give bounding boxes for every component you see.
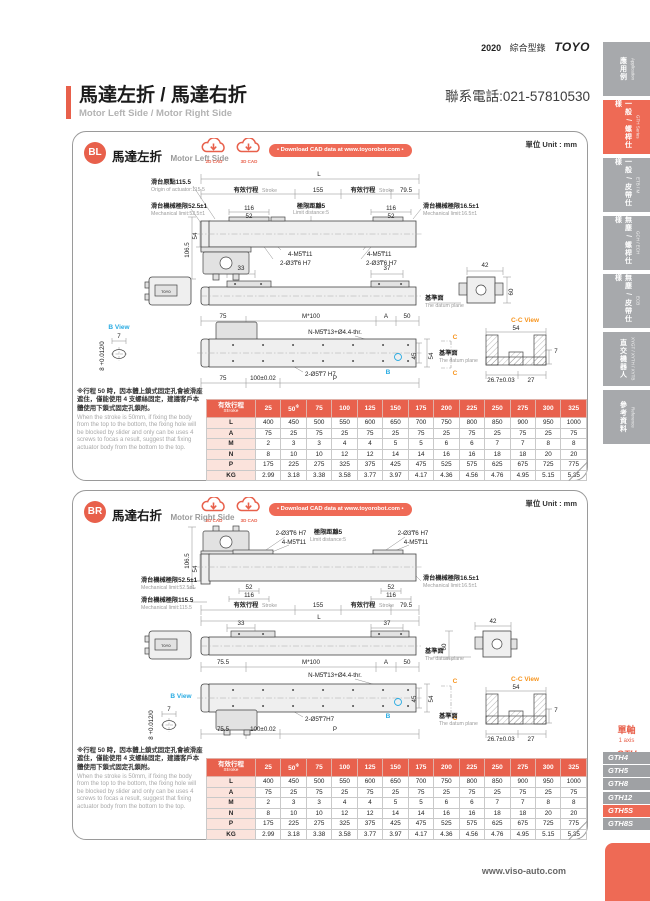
stroke-column-header: 325 [561, 759, 587, 777]
table-cell: 650 [383, 418, 408, 429]
page-subtitle: Motor Left Side / Motor Right Side [79, 108, 247, 119]
table-cell: 16 [434, 808, 459, 819]
table-cell: 5 [408, 439, 433, 450]
table-cell: 425 [383, 819, 408, 830]
table-cell: 600 [357, 777, 382, 788]
table-cell: 325 [332, 460, 357, 471]
drawing-label: 4-M5₸11 [367, 251, 392, 258]
table-row: P175225275325375425475525575625675725775 [207, 819, 587, 830]
table-cell: 725 [535, 460, 560, 471]
table-cell: 4.95 [510, 470, 535, 481]
table-cell: 575 [459, 460, 484, 471]
table-cell: 2 [256, 439, 281, 450]
section-badge-br: BR [84, 501, 106, 523]
table-cell: 4 [332, 798, 357, 809]
footnote-br: ※行程 50 時，因本體上鎖式固定孔會被滑座遮住，僅能使用 4 支螺絲固定，建議… [77, 747, 204, 811]
drawing-label: 79.5 [400, 187, 413, 194]
table-cell: 750 [434, 418, 459, 429]
tab-label-en: ETB / M [636, 177, 641, 193]
drawing-label: 42 [482, 262, 489, 269]
sidebar-tab-application[interactable]: 應用例Application [603, 42, 650, 96]
stroke-column-header: 175 [408, 400, 433, 418]
table-row: L400450500550600650700750800850900950100… [207, 777, 587, 788]
panel-motor-right: BR 馬達右折 Motor Right Side 2D CAD 3D CAD •… [72, 490, 588, 840]
drawing-label: P [333, 726, 337, 733]
tab-label-en: Application [631, 58, 636, 80]
table-cell: 3 [281, 439, 306, 450]
row-label: N [207, 808, 256, 819]
table-cell: 3.77 [357, 829, 382, 840]
table-cell: 275 [306, 819, 331, 830]
download-cad-button[interactable]: • Download CAD data at www.toyorobot.com… [269, 144, 412, 157]
stroke-column-header: 325 [561, 400, 587, 418]
tab-label-en: XYGT / XYTH / XYTB [631, 337, 636, 380]
table-cell: 25 [383, 428, 408, 439]
drawing-label: TOYO [161, 290, 171, 294]
table-cell: 8 [535, 439, 560, 450]
table-cell: 14 [383, 808, 408, 819]
drawing-label: M*100 [302, 659, 320, 666]
drawing-label: 基準面 [438, 712, 458, 720]
drawing-label: 50 [404, 313, 411, 320]
stroke-column-header: 200 [434, 400, 459, 418]
table-cell: 3 [306, 798, 331, 809]
stroke-column-header: 250 [485, 759, 510, 777]
stroke-column-header: 100 [332, 759, 357, 777]
drawing-label: C [453, 370, 458, 377]
stroke-column-header: 50※ [281, 400, 306, 418]
drawing-label: Limit distance:5 [310, 537, 346, 543]
table-cell: 25 [434, 428, 459, 439]
table-cell: 25 [281, 428, 306, 439]
unit-label: 單位 Unit : mm [525, 139, 577, 150]
table-row: A75257525752575257525752575 [207, 787, 587, 798]
table-cell: 14 [383, 449, 408, 460]
drawing-label: 2-Ø3₸6 H7 [398, 530, 429, 537]
drawing-label: Mechanical limit:52.5±1 [141, 585, 195, 591]
table-cell: 6 [434, 439, 459, 450]
drawing-label: 2-Ø3₸6 H7 [280, 260, 311, 267]
table-cell: 75 [408, 428, 433, 439]
row-label: A [207, 428, 256, 439]
table-cell: 75 [561, 787, 587, 798]
drawing-label: Mechanical limit:16.5±1 [423, 211, 477, 217]
stroke-column-header: 50※ [281, 759, 306, 777]
table-cell: 225 [281, 460, 306, 471]
stroke-column-header: 25 [256, 400, 281, 418]
table-cell: 475 [408, 460, 433, 471]
drawing-label: 有效行程 [351, 601, 377, 609]
table-cell: 14 [408, 449, 433, 460]
table-cell: 18 [510, 449, 535, 460]
drawing-label: 54 [192, 232, 199, 239]
table-cell: 16 [459, 808, 484, 819]
table-cell: 675 [510, 819, 535, 830]
stroke-column-header: 25 [256, 759, 281, 777]
table-cell: 18 [510, 808, 535, 819]
drawing-label: 79.5 [400, 602, 413, 609]
table-cell: 75 [510, 428, 535, 439]
cad-2d-label: 2D CAD [197, 518, 231, 523]
table-cell: 75 [357, 787, 382, 798]
table-cell: 175 [256, 819, 281, 830]
table-cell: 3 [281, 798, 306, 809]
sidebar-tab-ecb[interactable]: 無塵 / 皮帶仕樣ECB [603, 274, 650, 328]
drawing-label: 滑台機械極限115.5 [141, 596, 194, 604]
drawing-label: C [453, 678, 458, 685]
sidebar-tab-reference[interactable]: 參考資料Reference [603, 390, 650, 444]
table-cell: 18 [485, 808, 510, 819]
drawing-label: Mechanical limit:115.5 [141, 605, 192, 611]
row-label: A [207, 787, 256, 798]
drawing-label: 基準面 [424, 647, 444, 655]
drawing-label: P [333, 375, 337, 382]
drawing-label: 滑台原點115.5 [151, 178, 191, 186]
sidebar-tab-gch-ech[interactable]: 無塵 / 螺桿仕樣GCH / ECH [603, 216, 650, 270]
drawing-label: 106.5 [184, 242, 191, 258]
page-title-block: 馬達左折 / 馬達右折 Motor Left Side / Motor Righ… [66, 86, 247, 119]
table-cell: 3.58 [332, 470, 357, 481]
table-cell: 2 [256, 798, 281, 809]
drawing-label: 54 [513, 684, 520, 691]
page-title: 馬達左折 / 馬達右折 [79, 86, 247, 106]
table-cell: 10 [306, 449, 331, 460]
brand-logo: TOYO [554, 40, 590, 54]
table-cell: 4.56 [459, 829, 484, 840]
cad-3d-download[interactable]: 3D CAD [232, 497, 266, 523]
table-cell: 400 [256, 418, 281, 429]
table-cell: 900 [510, 777, 535, 788]
table-cell: 4.36 [434, 829, 459, 840]
catalog-header: 2020 綜合型錄 TOYO [481, 40, 590, 54]
table-cell: 625 [485, 819, 510, 830]
table-cell: 1000 [561, 777, 587, 788]
tab-label-en: Reference [631, 407, 636, 428]
table-row: KG2.993.183.383.583.773.974.174.364.564.… [207, 470, 587, 481]
table-cell: 375 [357, 819, 382, 830]
drawing-label: 52 [388, 213, 395, 220]
table-cell: 850 [485, 777, 510, 788]
tab-label-en: GCH / ECH [636, 231, 641, 254]
table-cell: 750 [434, 777, 459, 788]
drawing-label: 有效行程 [234, 601, 260, 609]
table-cell: 650 [383, 777, 408, 788]
table-cell: 20 [561, 808, 587, 819]
table-cell: 2.99 [256, 829, 281, 840]
drawing-label: Origin of actuator:115.5 [151, 187, 205, 193]
table-cell: 10 [281, 808, 306, 819]
table-cell: 3.58 [332, 829, 357, 840]
panel-motor-left: BL 馬達左折 Motor Left Side 2D CAD 3D CAD • … [72, 131, 588, 481]
drawing-label: 75 [220, 313, 227, 320]
table-cell: 500 [306, 418, 331, 429]
contact-phone: 聯系電話:021-57810530 [445, 85, 590, 105]
table-row: L400450500550600650700750800850900950100… [207, 418, 587, 429]
drawing-label: 2-Ø5₸7 H7 [305, 371, 336, 378]
table-cell: 800 [459, 418, 484, 429]
table-row: KG2.993.183.383.583.773.974.174.364.564.… [207, 829, 587, 840]
table-cell: 8 [561, 439, 587, 450]
footnote-en: When the stroke is 50mm, if fixing the b… [77, 415, 204, 453]
footnote-bl: ※行程 50 時，因本體上鎖式固定孔會被滑座遮住，僅能使用 4 支螺絲固定，建議… [77, 388, 204, 452]
drawing-label: 基準面 [424, 294, 444, 302]
drawing-label: 7 [554, 348, 558, 355]
drawing-label: 7 [117, 333, 121, 340]
drawing-label: 37 [384, 620, 391, 627]
table-cell: 25 [332, 428, 357, 439]
table-cell: 4.17 [408, 470, 433, 481]
row-label: P [207, 819, 256, 830]
footnote-en: When the stroke is 50mm, if fixing the b… [77, 774, 204, 812]
footnote-zh: ※行程 50 時，因本體上鎖式固定孔會被滑座遮住，僅能使用 4 支螺絲固定，建議… [77, 747, 204, 772]
drawing-label: 75.5 [217, 659, 230, 666]
footnote-zh: ※行程 50 時，因本體上鎖式固定孔會被滑座遮住，僅能使用 4 支螺絲固定，建議… [77, 388, 204, 413]
tab-label-zh: 參考資料 [618, 401, 628, 433]
drawing-label: 有效行程 [351, 186, 377, 194]
table-cell: 525 [434, 819, 459, 830]
drawing-label: 8 +0.012/0 [99, 341, 106, 371]
table-cell: 10 [306, 808, 331, 819]
table-cell: 900 [510, 418, 535, 429]
stroke-column-header: 150 [383, 759, 408, 777]
drawing-label: 7 [554, 707, 558, 714]
drawing-label: 116 [244, 205, 254, 212]
table-cell: 16 [434, 449, 459, 460]
table-cell: 1000 [561, 418, 587, 429]
drawing-label: 滑台機械極限16.5±1 [423, 202, 480, 210]
technical-drawing-br: 2-Ø3₸6 H74-M5₸11極限距離5Limit distance:52-Ø… [73, 525, 589, 753]
drawing-label: 106.5 [184, 553, 191, 569]
table-cell: 3.18 [281, 829, 306, 840]
stroke-column-header: 75 [306, 759, 331, 777]
table-cell: 275 [306, 460, 331, 471]
table-cell: 12 [357, 449, 382, 460]
drawing-label: 極限距離5 [296, 202, 326, 210]
row-label: KG [207, 470, 256, 481]
table-cell: 7 [510, 439, 535, 450]
drawing-label: 52 [246, 584, 253, 591]
cad-3d-label: 3D CAD [232, 159, 266, 164]
stroke-header-cell: 有效行程Stroke [207, 400, 256, 418]
stroke-column-header: 125 [357, 759, 382, 777]
cad-2d-download[interactable]: 2D CAD [197, 497, 231, 523]
cloud-download-icon [199, 138, 229, 155]
drawing-label: M*100 [302, 313, 320, 320]
table-cell: 3 [306, 439, 331, 450]
table-cell: 75 [306, 428, 331, 439]
tab-label-en: ECB [636, 296, 641, 305]
stroke-column-header: 100 [332, 400, 357, 418]
table-cell: 225 [281, 819, 306, 830]
cloud-download-icon [199, 497, 229, 514]
row-label: L [207, 418, 256, 429]
series-zh: 單軸 [617, 725, 635, 735]
catalog-name: 綜合型錄 [510, 43, 546, 53]
table-cell: 25 [485, 787, 510, 798]
table-cell: 4.76 [485, 470, 510, 481]
title-accent-bar [66, 86, 71, 119]
table-cell: 425 [383, 460, 408, 471]
drawing-label: C-C View [511, 676, 540, 683]
drawing-label: 60 [508, 288, 515, 295]
drawing-label: 極限距離5 [313, 528, 343, 536]
table-cell: 75 [408, 787, 433, 798]
table-cell: 75 [561, 428, 587, 439]
table-cell: 75 [510, 787, 535, 798]
table-cell: 675 [510, 460, 535, 471]
table-cell: 75 [306, 787, 331, 798]
drawing-label: 45 [411, 352, 418, 359]
stroke-table-br: 有效行程Stroke2550※7510012515017520022525027… [206, 758, 587, 840]
table-cell: 25 [281, 787, 306, 798]
drawing-label: The datum plane [425, 656, 464, 662]
table-cell: 3.97 [383, 470, 408, 481]
table-cell: 4.17 [408, 829, 433, 840]
table-cell: 8 [256, 449, 281, 460]
drawing-label: 54 [428, 695, 435, 702]
drawing-label: C-C View [511, 317, 540, 324]
model-button-gth5s[interactable]: GTH5S [603, 805, 650, 817]
table-cell: 7 [485, 798, 510, 809]
drawing-label: 7 [167, 706, 171, 713]
page-corner-decoration [605, 843, 650, 901]
table-cell: 850 [485, 418, 510, 429]
drawing-label: 4-M5₸11 [404, 539, 429, 546]
table-cell: 3.77 [357, 470, 382, 481]
drawing-label: The datum plane [425, 303, 464, 309]
stroke-column-header: 150 [383, 400, 408, 418]
drawing-label: B View [170, 693, 192, 700]
table-cell: 8 [535, 798, 560, 809]
drawing-label: 基準面 [438, 349, 458, 357]
table-row: N8101012121414161618182020 [207, 449, 587, 460]
drawing-label: Stroke [262, 603, 277, 609]
drawing-label: 2-Ø3₸6 H7 [366, 260, 397, 267]
drawing-label: 8 +0.012/0 [148, 710, 155, 740]
row-label: N [207, 449, 256, 460]
drawing-label: 155 [313, 187, 324, 194]
table-cell: 7 [510, 798, 535, 809]
table-cell: 3.38 [306, 470, 331, 481]
tab-label-zh: 直交機器人 [618, 339, 628, 379]
table-cell: 25 [332, 787, 357, 798]
table-cell: 4 [357, 798, 382, 809]
cloud-download-icon [234, 138, 264, 155]
row-label: KG [207, 829, 256, 840]
section-title-zh: 馬達右折 [112, 509, 162, 523]
table-cell: 800 [459, 777, 484, 788]
drawing-label: The datum plane [439, 358, 478, 364]
table-cell: 5 [383, 439, 408, 450]
table-cell: 6 [459, 439, 484, 450]
row-label: L [207, 777, 256, 788]
table-row: P175225275325375425475525575625675725775 [207, 460, 587, 471]
stroke-column-header: 175 [408, 759, 433, 777]
drawing-label: The datum plane [439, 721, 478, 727]
model-button-gth8[interactable]: GTH8 [603, 778, 650, 790]
table-cell: 12 [332, 449, 357, 460]
stroke-column-header: 200 [434, 759, 459, 777]
drawing-label: 100±0.02 [250, 726, 276, 733]
table-cell: 4.36 [434, 470, 459, 481]
table-cell: 25 [434, 787, 459, 798]
series-en: 1 axis [603, 738, 650, 745]
stroke-table-bl: 有效行程Stroke2550※7510012515017520022525027… [206, 399, 587, 481]
cad-2d-download[interactable]: 2D CAD [197, 138, 231, 164]
stroke-column-header: 225 [459, 400, 484, 418]
sidebar-tab-xygt-xyth-xytb[interactable]: 直交機器人XYGT / XYTH / XYTB [603, 332, 650, 386]
table-cell: 525 [434, 460, 459, 471]
drawing-label: 54 [428, 352, 435, 359]
drawing-label: 滑台機械極限52.5±1 [151, 202, 208, 210]
table-cell: 3.97 [383, 829, 408, 840]
model-button-gth4[interactable]: GTH4 [603, 752, 650, 764]
table-cell: 5.15 [535, 829, 560, 840]
tab-label-zh: 應用例 [618, 57, 628, 81]
table-cell: 950 [535, 777, 560, 788]
model-button-gth5[interactable]: GTH5 [603, 765, 650, 777]
drawing-label: 100±0.02 [250, 375, 276, 382]
table-cell: 5 [383, 798, 408, 809]
drawing-label: 75 [220, 375, 227, 382]
table-cell: 5 [408, 798, 433, 809]
drawing-label: B [386, 713, 391, 720]
table-row: M2334455667788 [207, 439, 587, 450]
drawing-label: Stroke [379, 603, 394, 609]
table-cell: 14 [408, 808, 433, 819]
drawing-label: 26.7±0.03 [487, 736, 515, 743]
table-cell: 75 [256, 787, 281, 798]
drawing-label: 滑台機械極限52.5±1 [141, 576, 198, 584]
drawing-label: 有效行程 [234, 186, 260, 194]
download-cad-button[interactable]: • Download CAD data at www.toyorobot.com… [269, 503, 412, 516]
drawing-label: Mechanical limit:16.5±1 [423, 583, 477, 589]
model-button-gth8s[interactable]: GTH8S [603, 818, 650, 830]
stroke-column-header: 250 [485, 400, 510, 418]
table-row: N8101012121414161618182020 [207, 808, 587, 819]
table-cell: 12 [357, 808, 382, 819]
row-label: M [207, 798, 256, 809]
unit-label: 單位 Unit : mm [525, 498, 577, 509]
cad-3d-download[interactable]: 3D CAD [232, 138, 266, 164]
table-cell: 700 [408, 418, 433, 429]
drawing-label: 27 [528, 377, 535, 384]
row-label: M [207, 439, 256, 450]
section-badge-bl: BL [84, 142, 106, 164]
sidebar-tab-etb-m[interactable]: 一般 / 皮帶仕樣ETB / M [603, 158, 650, 212]
drawing-label: 37 [384, 265, 391, 272]
table-cell: 25 [535, 787, 560, 798]
stroke-column-header: 125 [357, 400, 382, 418]
drawing-label: 116 [386, 592, 396, 599]
table-cell: 75 [256, 428, 281, 439]
table-cell: 625 [485, 460, 510, 471]
table-cell: 550 [332, 777, 357, 788]
tab-label-zh: 一般 / 皮帶仕樣 [613, 158, 633, 212]
table-cell: 725 [535, 819, 560, 830]
stroke-column-header: 300 [535, 400, 560, 418]
drawing-label: 27 [528, 736, 535, 743]
table-cell: 18 [485, 449, 510, 460]
table-cell: 2.99 [256, 470, 281, 481]
table-cell: 475 [408, 819, 433, 830]
drawing-label: N-M5₸13+Ø4.4-thr. [308, 329, 362, 336]
drawing-label: 26.7±0.03 [487, 377, 515, 384]
table-cell: 16 [459, 449, 484, 460]
drawing-label: 52 [388, 584, 395, 591]
model-button-gth12[interactable]: GTH12 [603, 792, 650, 804]
sidebar-tab-gth-series[interactable]: 一般 / 螺桿仕樣GTH Series [603, 100, 650, 154]
